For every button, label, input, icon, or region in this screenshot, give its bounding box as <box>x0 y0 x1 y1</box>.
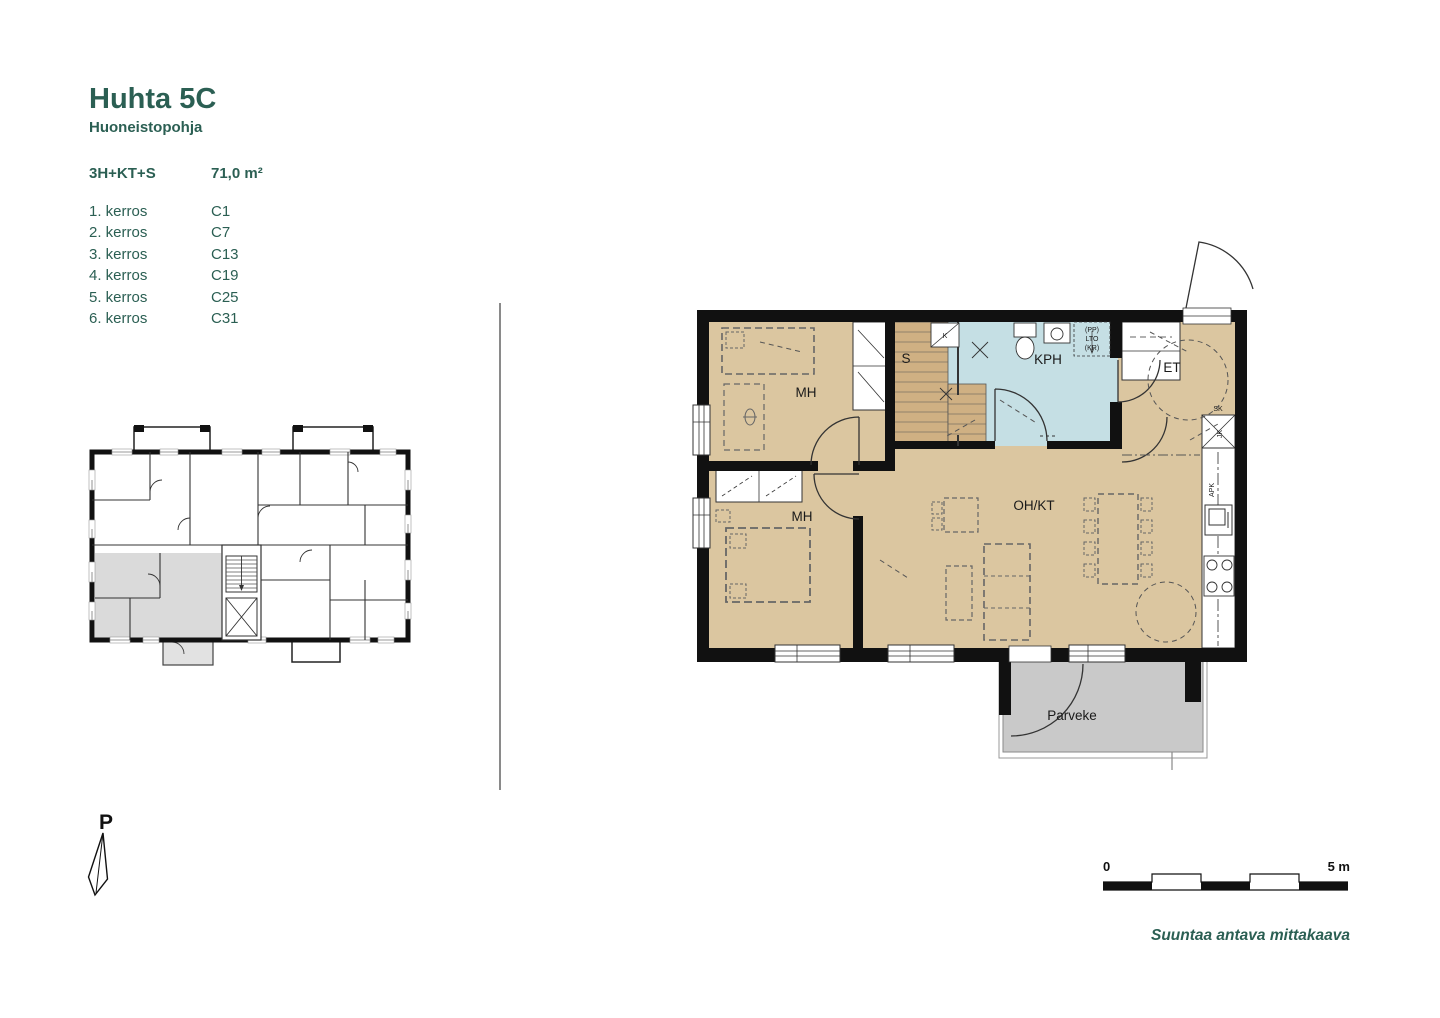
north-arrow-icon <box>89 833 108 895</box>
floor-label: 3. kerros <box>89 246 147 263</box>
scale-bar: 0 5 m <box>1090 852 1362 900</box>
table-row: 4. kerros C19 <box>89 267 349 288</box>
table-row: 2. kerros C7 <box>89 224 349 245</box>
apartment-type: 3H+KT+S <box>89 165 156 182</box>
page-title: Huhta 5C <box>89 84 216 114</box>
cabinet-icon: K <box>931 323 959 347</box>
apartment-info: 3H+KT+S 71,0 m² <box>89 165 349 182</box>
sink-icon <box>1205 505 1232 535</box>
entry-label: ET <box>1163 360 1180 375</box>
entrance-door-arc <box>1186 242 1253 308</box>
scale-caption: Suuntaa antava mittakaava <box>1050 927 1350 945</box>
highlighted-apartment <box>95 553 222 665</box>
bathroom-label: KPH <box>1034 352 1062 367</box>
building-overview-plan <box>85 420 415 670</box>
fridge-label: JK <box>1217 430 1224 439</box>
scale-end-label: 5 m <box>1328 859 1350 874</box>
vertical-divider <box>499 303 501 790</box>
kitchen-counter: SK JK APK <box>1202 406 1235 648</box>
apartment-floor-plan: Parveke SK <box>690 230 1265 775</box>
table-row: 5. kerros C25 <box>89 289 349 310</box>
page-subtitle: Huoneistopohja <box>89 119 216 136</box>
apartment-area: 71,0 m² <box>211 165 263 182</box>
scale-bar-segments <box>1103 874 1348 890</box>
balcony-label: Parveke <box>1047 708 1097 723</box>
apartment-code: C7 <box>211 224 230 241</box>
floor-label: 6. kerros <box>89 310 147 327</box>
floor-plan-sheet: Huhta 5C Huoneistopohja 3H+KT+S 71,0 m² … <box>0 0 1440 1018</box>
apartment-code: C1 <box>211 203 230 220</box>
balcony: Parveke <box>999 660 1207 770</box>
apartment-code: C25 <box>211 289 239 306</box>
table-row: 1. kerros C1 <box>89 203 349 224</box>
header: Huhta 5C Huoneistopohja <box>89 84 216 136</box>
bedroom-bottom-label: MH <box>792 509 813 524</box>
cleaning-closet-label: SK <box>1213 406 1223 413</box>
scale-start-label: 0 <box>1103 859 1110 874</box>
floor-label: 2. kerros <box>89 224 147 241</box>
cabinet-label: K <box>943 333 948 340</box>
table-row: 6. kerros C31 <box>89 310 349 331</box>
north-label: P <box>99 811 113 834</box>
stove-icon <box>1204 556 1234 596</box>
living-kitchen-label: OH/KT <box>1013 498 1054 513</box>
north-arrow: P <box>80 802 125 902</box>
floor-label: 4. kerros <box>89 267 147 284</box>
floor-label: 5. kerros <box>89 289 147 306</box>
sauna-label: S <box>901 351 910 366</box>
apartment-code: C19 <box>211 267 239 284</box>
overview-stairwell <box>222 545 261 640</box>
floors-table: 1. kerros C1 2. kerros C7 3. kerros C13 … <box>89 203 349 331</box>
apartment-code: C13 <box>211 246 239 263</box>
dishwasher-label: APK <box>1209 483 1216 497</box>
bedroom-top-label: MH <box>796 385 817 400</box>
table-row: 3. kerros C13 <box>89 246 349 267</box>
floor-label: 1. kerros <box>89 203 147 220</box>
apartment-code: C31 <box>211 310 239 327</box>
